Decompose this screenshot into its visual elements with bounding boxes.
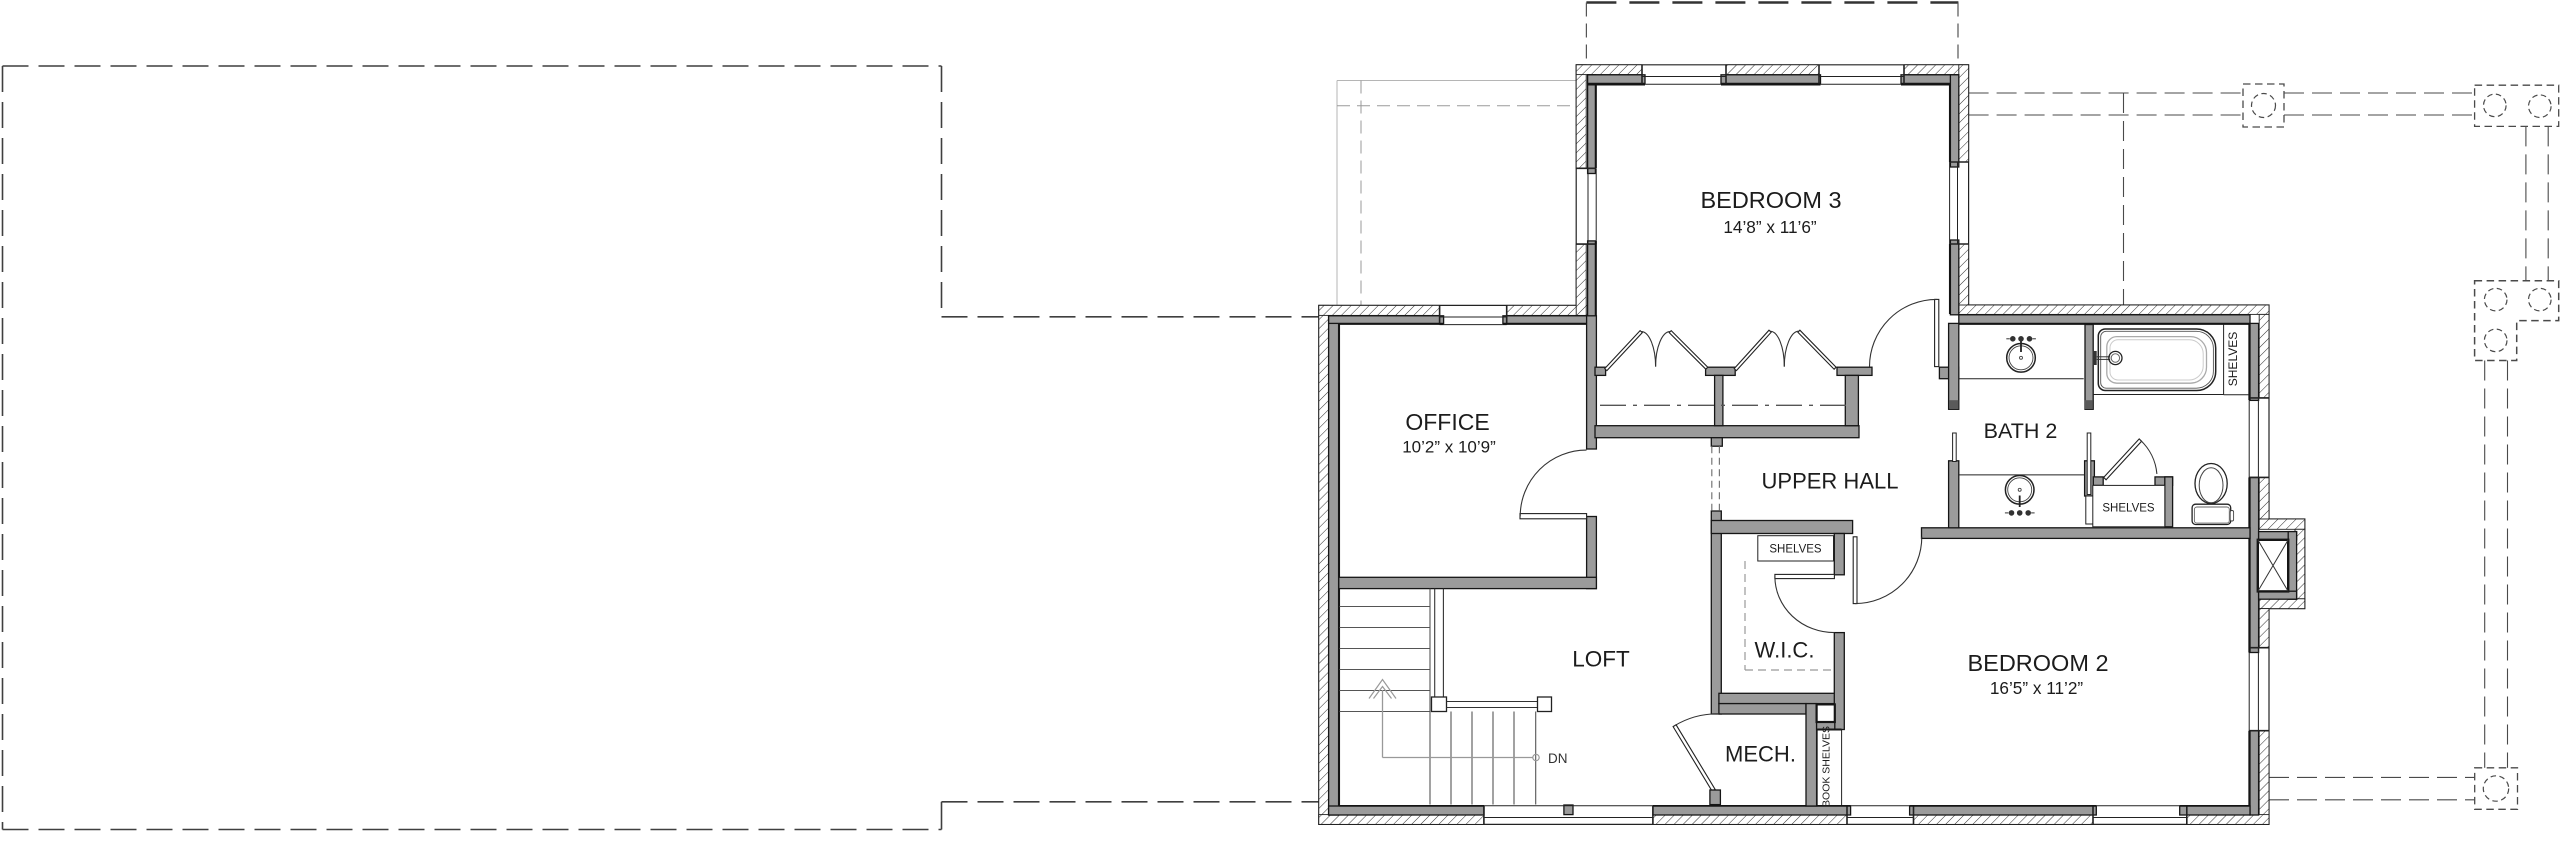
svg-text:10’2” x 10’9”: 10’2” x 10’9” xyxy=(1402,438,1496,457)
svg-text:BEDROOM 3: BEDROOM 3 xyxy=(1700,187,1841,213)
svg-text:DN: DN xyxy=(1548,751,1568,766)
svg-text:SHELVES: SHELVES xyxy=(2226,332,2240,386)
svg-text:OFFICE: OFFICE xyxy=(1405,409,1489,435)
svg-text:MECH.: MECH. xyxy=(1725,742,1796,767)
svg-text:16’5” x 11’2”: 16’5” x 11’2” xyxy=(1990,678,2084,698)
svg-text:BEDROOM 2: BEDROOM 2 xyxy=(1967,650,2108,676)
svg-text:W.I.C.: W.I.C. xyxy=(1755,638,1815,663)
svg-text:UPPER HALL: UPPER HALL xyxy=(1762,469,1899,494)
svg-text:SHELVES: SHELVES xyxy=(1769,544,1822,556)
svg-text:14’8” x 11’6”: 14’8” x 11’6” xyxy=(1723,217,1817,237)
svg-text:BATH 2: BATH 2 xyxy=(1984,419,2058,443)
svg-text:BOOK SHELVES: BOOK SHELVES xyxy=(1821,726,1833,807)
svg-text:SHELVES: SHELVES xyxy=(2102,503,2155,515)
svg-text:LOFT: LOFT xyxy=(1572,647,1630,672)
